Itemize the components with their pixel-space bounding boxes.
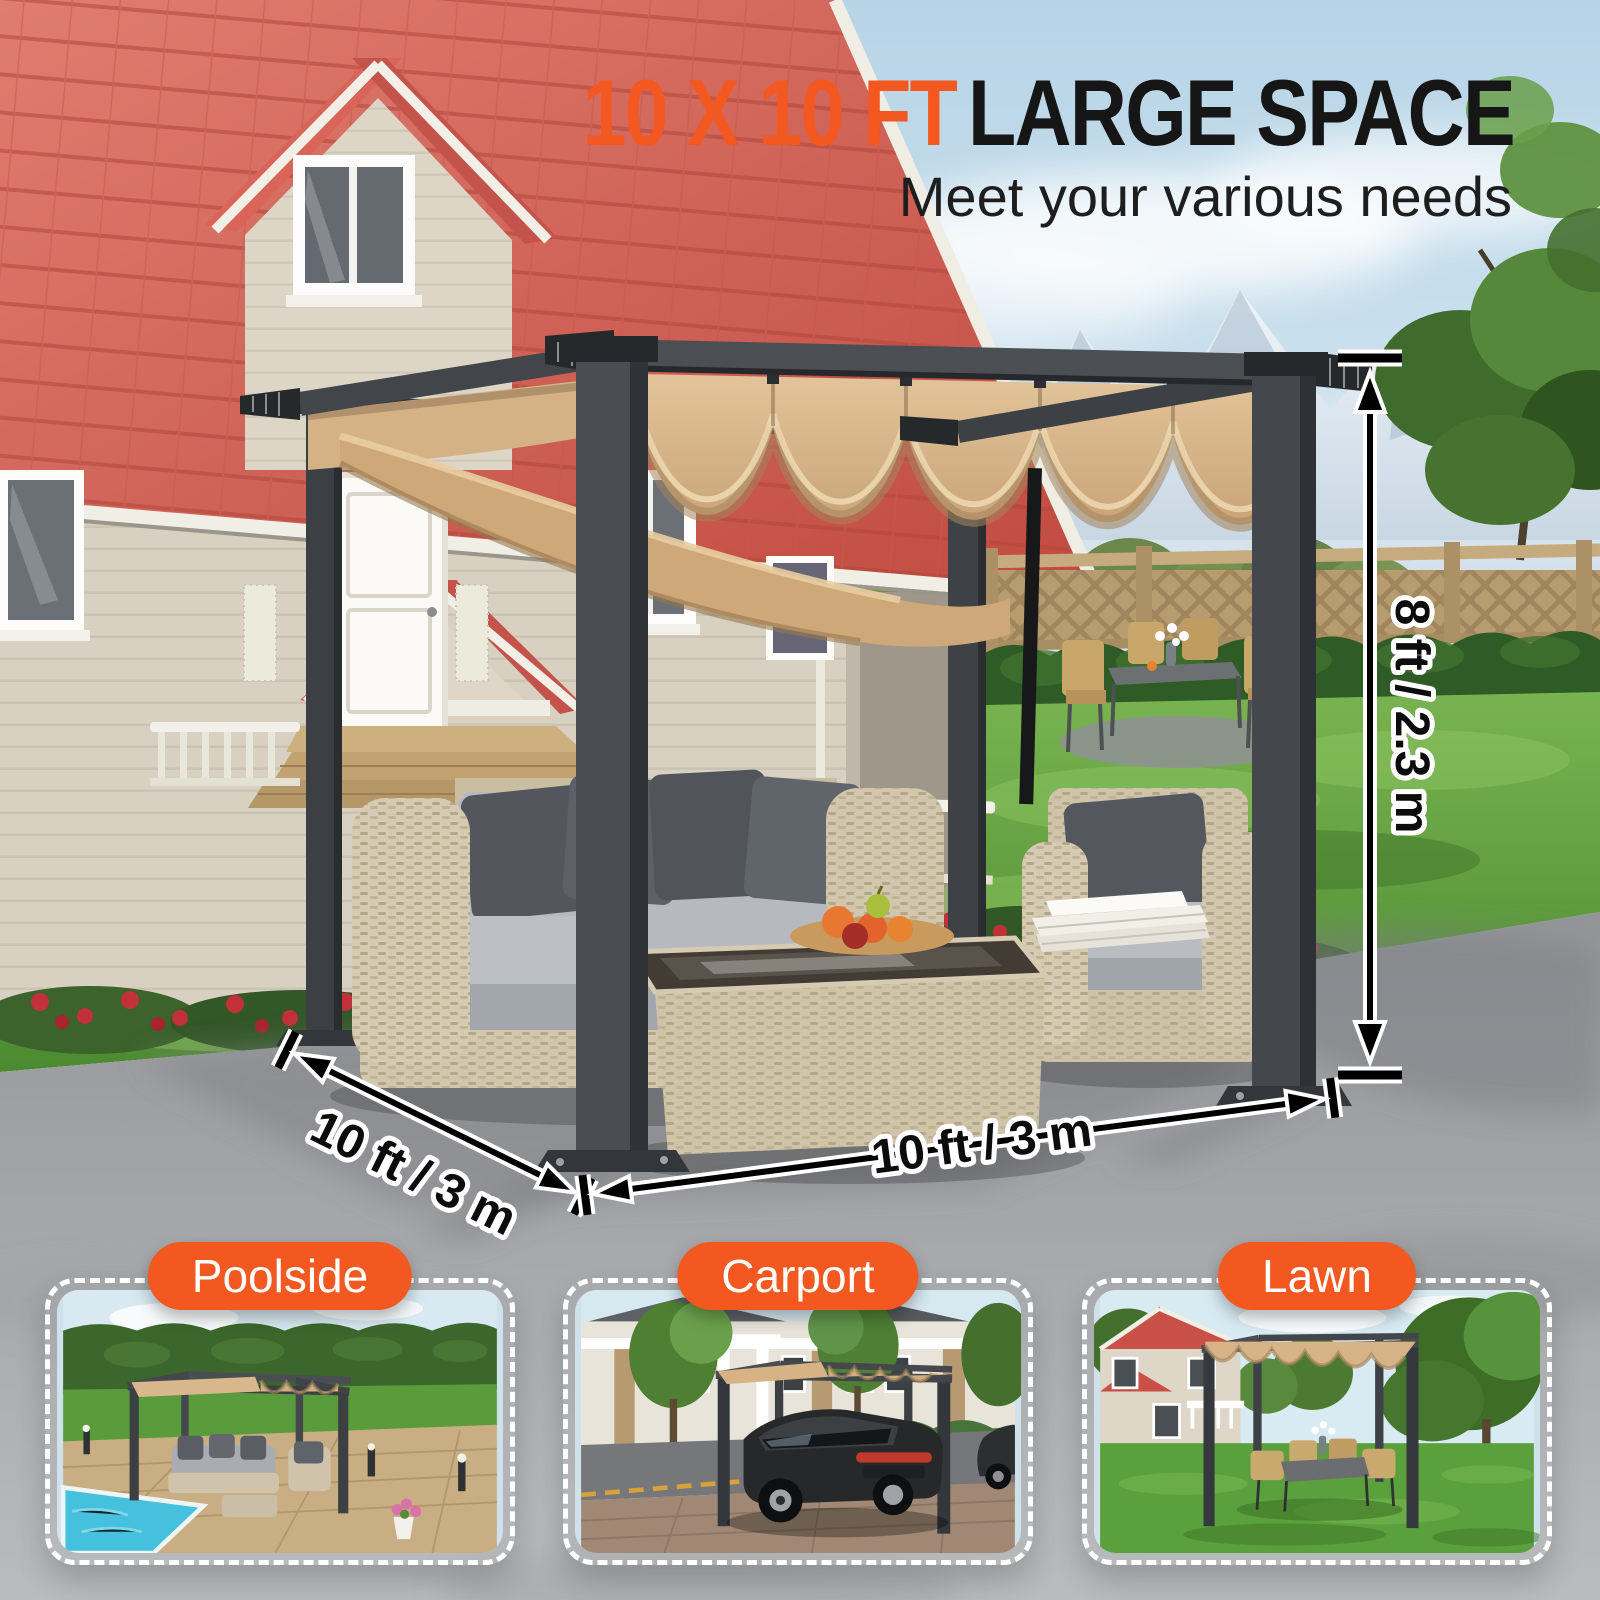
thumbnail-label-poolside: Poolside [148, 1242, 412, 1310]
carport-image [575, 1290, 1021, 1553]
door-handle [427, 607, 437, 617]
dormer-window [286, 155, 422, 307]
sofa-pillows [460, 769, 863, 922]
thumbnail-poolside [45, 1278, 515, 1565]
slat-panel-right [456, 585, 488, 681]
carport-scene [575, 1290, 1021, 1553]
headline-rest: LARGE SPACE [968, 60, 1514, 165]
height-label: 8 ft / 2.3 m [1385, 599, 1438, 834]
poolside-image [57, 1290, 503, 1553]
lawn-image [1094, 1290, 1540, 1553]
carport-car [727, 1409, 948, 1537]
thumbnail-label-lawn: Lawn [1218, 1242, 1416, 1310]
headline-highlight: 10 X 10 FT [582, 60, 956, 165]
product-marketing-image: 8 ft / 2.3 m 10 ft / 3 m 10 ft / 3 m 10 … [0, 0, 1600, 1600]
poolside-scene [57, 1290, 503, 1553]
lawn-scene [1094, 1290, 1540, 1553]
thumbnail-lawn [1082, 1278, 1552, 1565]
headline-subtitle: Meet your various needs [899, 166, 1512, 228]
thumbnail-label-carport: Carport [677, 1242, 918, 1310]
headline: 10 X 10 FTLARGE SPACE [582, 66, 1514, 160]
slat-panel-left [244, 585, 276, 681]
left-window [0, 470, 90, 641]
thumbnail-carport [563, 1278, 1033, 1565]
